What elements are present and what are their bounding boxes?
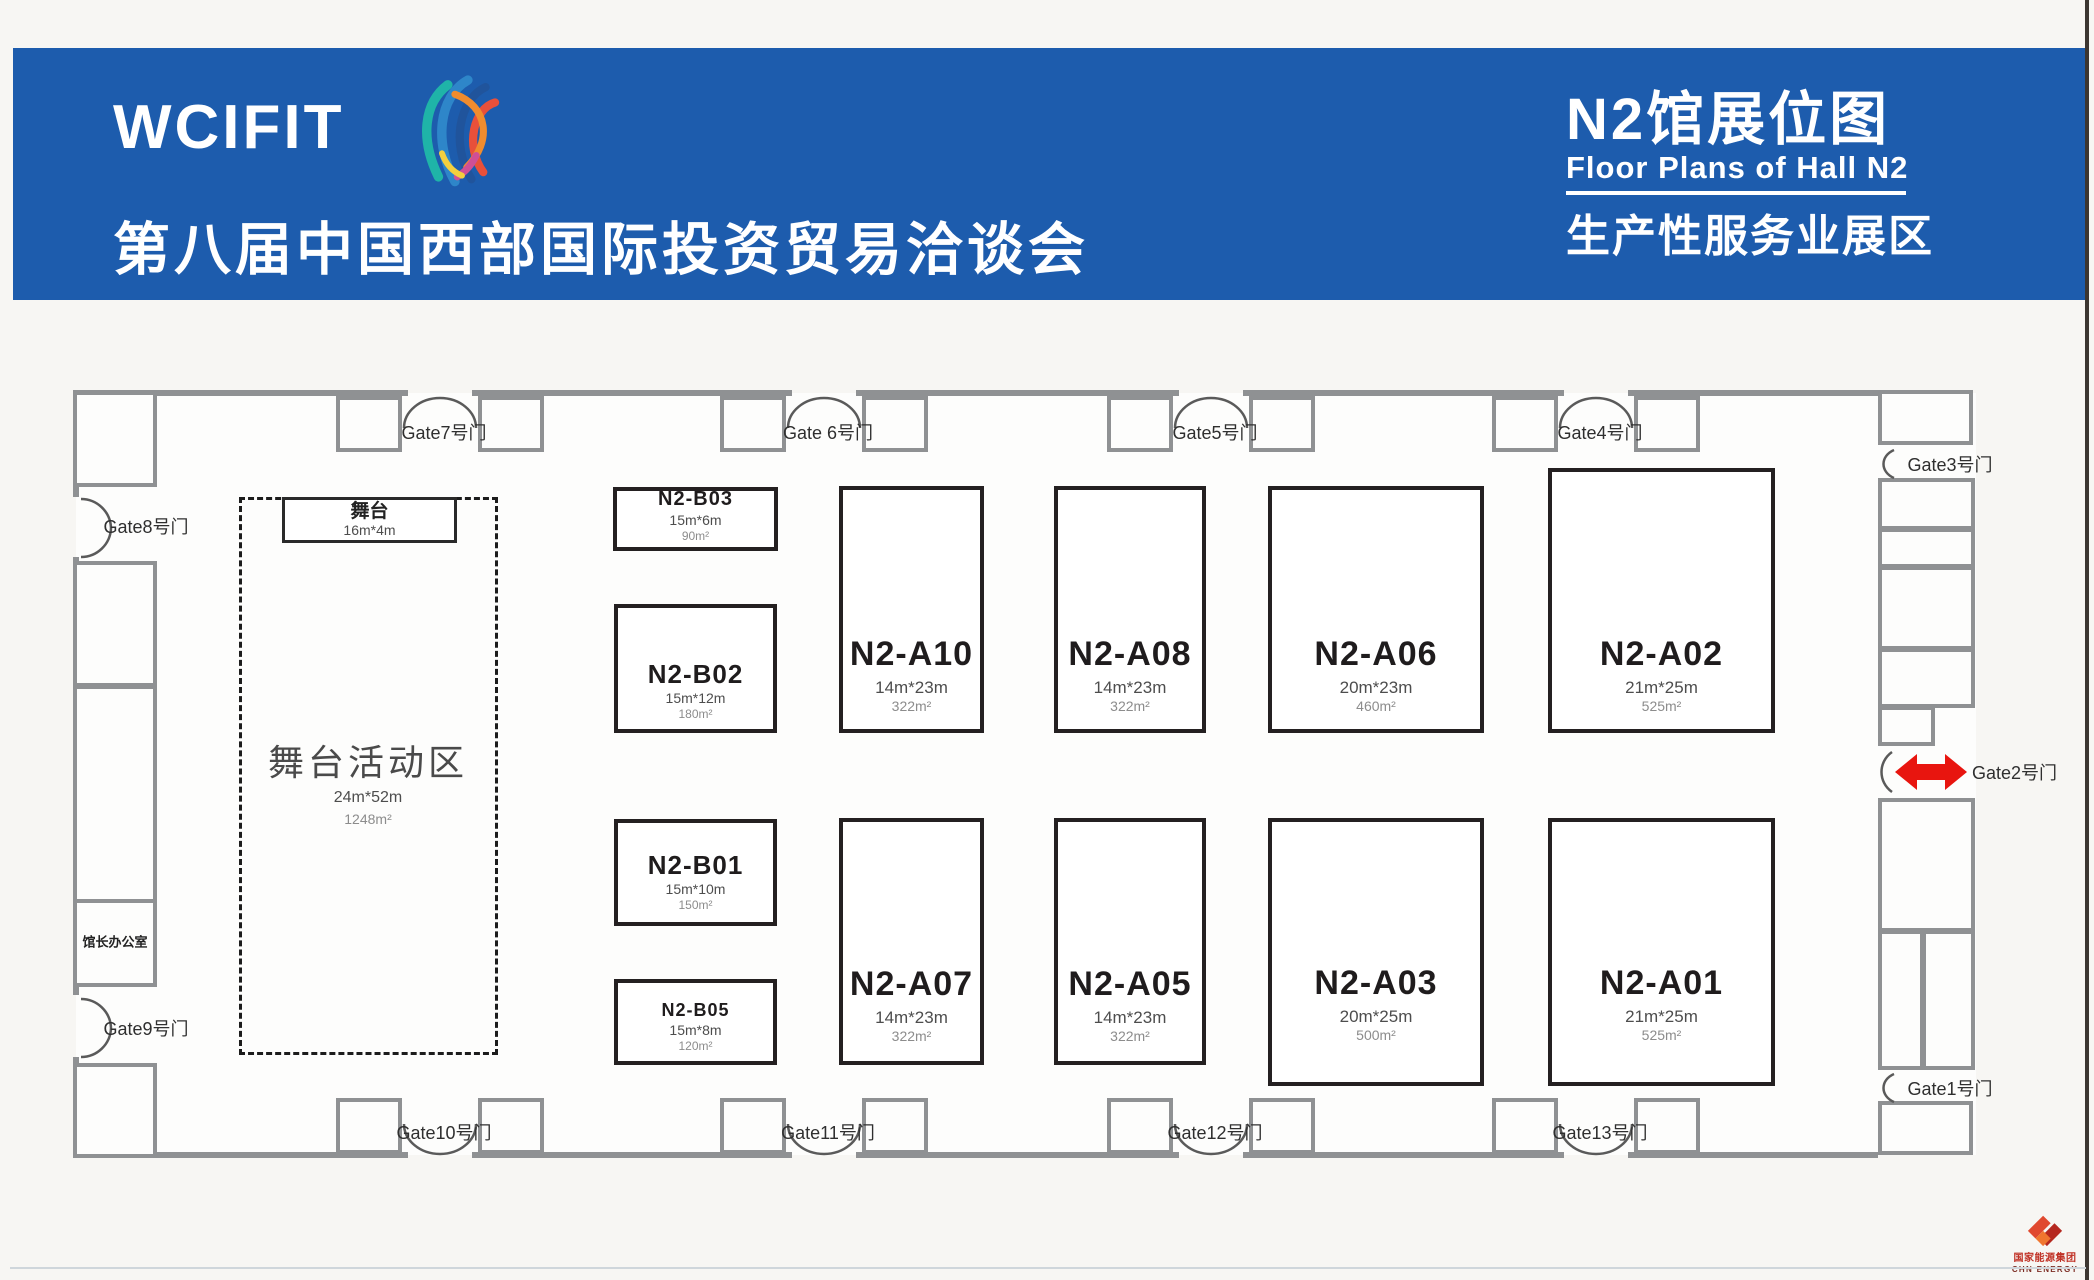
gate2-arrow-icon [1894, 751, 1968, 793]
booth-name: N2-B02 [618, 659, 773, 690]
booth-area: 322m² [843, 1028, 980, 1045]
booth-n2-b03: N2-B03 15m*6m 90m² [613, 487, 778, 551]
gate-label-10: Gate10号门 [396, 1119, 491, 1145]
booth-n2-a02: N2-A02 21m*25m 525m² [1548, 468, 1775, 733]
gate-label-9: Gate9号门 [103, 1015, 188, 1041]
booth-area: 460m² [1272, 698, 1480, 715]
stage-dims: 16m*4m [285, 523, 454, 538]
office-label: 馆长办公室 [82, 932, 147, 951]
gate-label-7: Gate7号门 [401, 419, 486, 445]
booth-n2-a07: N2-A07 14m*23m 322m² [839, 818, 984, 1065]
stage-zone-dims: 24m*52m [334, 789, 402, 807]
booth-name: N2-A08 [1058, 634, 1202, 674]
gate-label-2: Gate2号门 [1972, 759, 2057, 785]
booth-dims: 15m*10m [618, 881, 773, 898]
door-arc-icon [1876, 448, 1898, 480]
gate-label-5: Gate5号门 [1172, 419, 1257, 445]
booth-area: 322m² [1058, 698, 1202, 715]
floor-plan-page: WCIFIT 第八届中国西部国际投资贸易洽谈会 N2馆展位图 Floor Pla… [0, 0, 2094, 1280]
side-room [1878, 648, 1975, 708]
booth-name: N2-A02 [1552, 634, 1771, 674]
booth-name: N2-A06 [1272, 634, 1480, 674]
gate-label-12: Gate12号门 [1167, 1119, 1262, 1145]
booth-area: 500m² [1272, 1027, 1480, 1044]
gate-label-4: Gate4号门 [1557, 419, 1642, 445]
gate-vestibule [1249, 396, 1315, 452]
stage-box: 舞台 16m*4m [282, 497, 457, 543]
stage-zone-area: 1248m² [344, 811, 391, 827]
gate-label-1: Gate1号门 [1907, 1075, 1992, 1101]
booth-name: N2-B03 [617, 488, 774, 512]
side-room [1878, 478, 1975, 530]
booth-n2-b05: N2-B05 15m*8m 120m² [614, 979, 777, 1065]
gate-vestibule [1492, 1098, 1558, 1154]
booth-n2-b02: N2-B02 15m*12m 180m² [614, 604, 777, 733]
brand-name: WCIFIT [113, 92, 345, 163]
org-name-en: CHN ENERGY [1998, 1265, 2092, 1275]
booth-name: N2-A03 [1272, 963, 1480, 1003]
side-room [73, 685, 157, 903]
booth-dims: 21m*25m [1552, 678, 1771, 698]
booth-n2-a06: N2-A06 20m*23m 460m² [1268, 486, 1484, 733]
gate-vestibule [336, 1098, 402, 1154]
header-banner: WCIFIT 第八届中国西部国际投资贸易洽谈会 N2馆展位图 Floor Pla… [13, 48, 2085, 300]
org-name-cn: 国家能源集团 [1998, 1253, 2092, 1265]
booth-area: 525m² [1552, 698, 1771, 715]
booth-name: N2-B01 [618, 850, 773, 881]
booth-dims: 14m*23m [843, 678, 980, 698]
booth-area: 90m² [617, 529, 774, 543]
booth-dims: 15m*8m [618, 1022, 773, 1039]
stage-zone-label: 舞台活动区 [268, 734, 468, 786]
booth-area: 150m² [618, 898, 773, 912]
divider-line [1566, 191, 1906, 195]
side-room [1922, 930, 1975, 1070]
gate-label-13: Gate13号门 [1552, 1119, 1647, 1145]
booth-n2-a10: N2-A10 14m*23m 322m² [839, 486, 984, 733]
gate-vestibule [478, 396, 544, 452]
booth-area: 322m² [1058, 1028, 1202, 1045]
booth-dims: 14m*23m [1058, 1008, 1202, 1028]
booth-name: N2-A01 [1552, 963, 1771, 1003]
gate-vestibule [1492, 396, 1558, 452]
side-room [1878, 930, 1924, 1070]
hall-title: N2馆展位图 [1566, 72, 1890, 156]
gate-label-11: Gate11号门 [781, 1119, 875, 1145]
booth-area: 180m² [618, 707, 773, 721]
booth-area: 120m² [618, 1039, 773, 1053]
gate-vestibule [1107, 396, 1173, 452]
gate-label-6: Gate 6号门 [783, 419, 873, 445]
gate-label-3: Gate3号门 [1907, 451, 1992, 477]
booth-dims: 20m*25m [1272, 1007, 1480, 1027]
bottom-edge-line [10, 1267, 2086, 1269]
booth-name: N2-A07 [843, 964, 980, 1004]
side-room [73, 561, 157, 687]
side-room [1878, 528, 1975, 568]
gate-label-8: Gate8号门 [103, 513, 188, 539]
side-room [73, 391, 157, 487]
booth-name: N2-B05 [618, 1000, 773, 1021]
chn-energy-mark-icon [2022, 1210, 2068, 1248]
booth-name: N2-A05 [1058, 964, 1202, 1004]
chn-energy-logo: 国家能源集团 CHN ENERGY [1998, 1210, 2092, 1274]
gate-vestibule [1634, 396, 1700, 452]
booth-name: N2-A10 [843, 634, 980, 674]
gate-vestibule [336, 396, 402, 452]
side-room [1878, 1101, 1973, 1155]
booth-dims: 20m*23m [1272, 678, 1480, 698]
door-arc-icon [1874, 750, 1896, 794]
side-room [1878, 390, 1973, 445]
hall-title-en: Floor Plans of Hall N2 [1566, 150, 1908, 186]
door-arc-icon [1876, 1072, 1898, 1104]
booth-area: 525m² [1552, 1027, 1771, 1044]
booth-area: 322m² [843, 698, 980, 715]
booth-dims: 14m*23m [1058, 678, 1202, 698]
booth-dims: 21m*25m [1552, 1007, 1771, 1027]
side-room [1878, 798, 1975, 932]
side-room [1878, 566, 1975, 650]
booth-n2-a01: N2-A01 21m*25m 525m² [1548, 818, 1775, 1086]
booth-n2-a05: N2-A05 14m*23m 322m² [1054, 818, 1206, 1065]
side-room [1878, 706, 1935, 746]
booth-dims: 15m*6m [617, 512, 774, 529]
stage-label: 舞台 [285, 502, 454, 523]
side-room [73, 1063, 157, 1158]
gate-vestibule [1107, 1098, 1173, 1154]
brand-logo-icon [403, 72, 521, 192]
booth-dims: 15m*12m [618, 690, 773, 707]
booth-n2-b01: N2-B01 15m*10m 150m² [614, 819, 777, 926]
booth-dims: 14m*23m [843, 1008, 980, 1028]
right-border-line [2085, 0, 2089, 1280]
booth-n2-a08: N2-A08 14m*23m 322m² [1054, 486, 1206, 733]
gate-vestibule [720, 1098, 786, 1154]
event-title: 第八届中国西部国际投资贸易洽谈会 [113, 204, 1089, 286]
gate-vestibule [720, 396, 786, 452]
booth-n2-a03: N2-A03 20m*25m 500m² [1268, 818, 1484, 1086]
hall-zone: 生产性服务业展区 [1566, 200, 1934, 264]
